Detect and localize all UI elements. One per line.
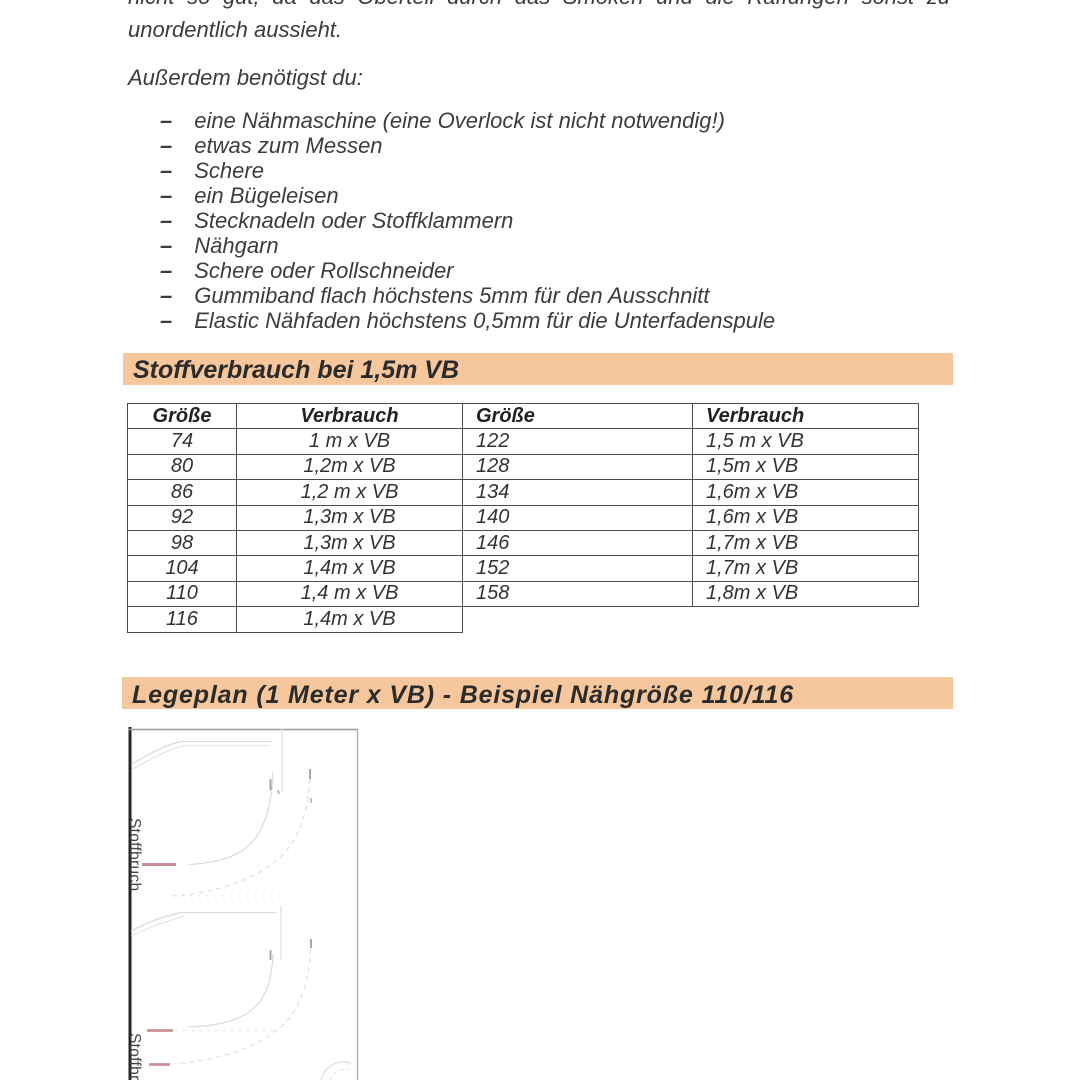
svg-text:Stoffbruch: Stoffbruch (126, 1033, 143, 1080)
svg-text:Stoffbruch: Stoffbruch (126, 818, 143, 891)
